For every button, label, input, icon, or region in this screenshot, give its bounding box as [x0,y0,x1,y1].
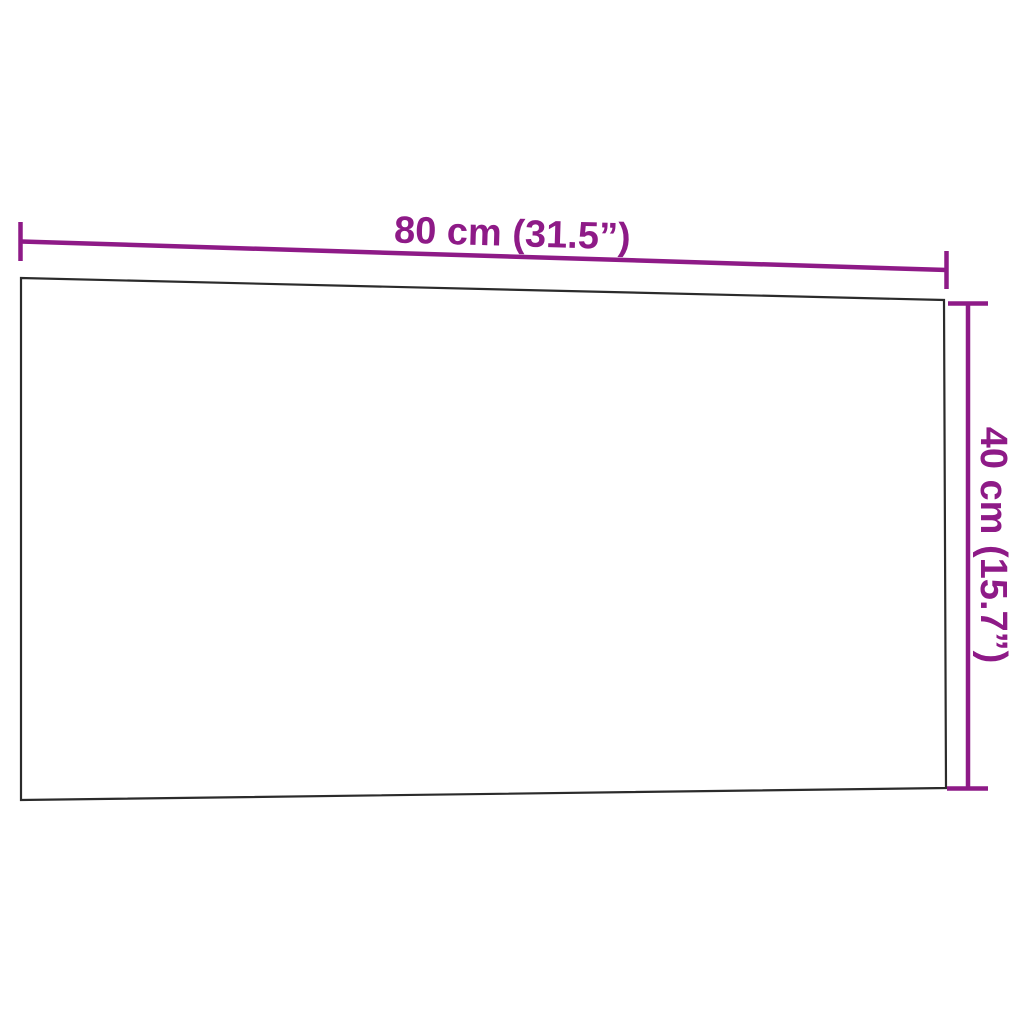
diagram-canvas: 80 cm (31.5”) 40 cm (15.7”) [0,0,1024,1024]
dimension-diagram: 80 cm (31.5”) 40 cm (15.7”) [0,0,1024,1024]
height-dimension-label: 40 cm (15.7”) [972,427,1014,664]
panel-outline [21,278,946,800]
width-dimension-label: 80 cm (31.5”) [393,210,631,259]
